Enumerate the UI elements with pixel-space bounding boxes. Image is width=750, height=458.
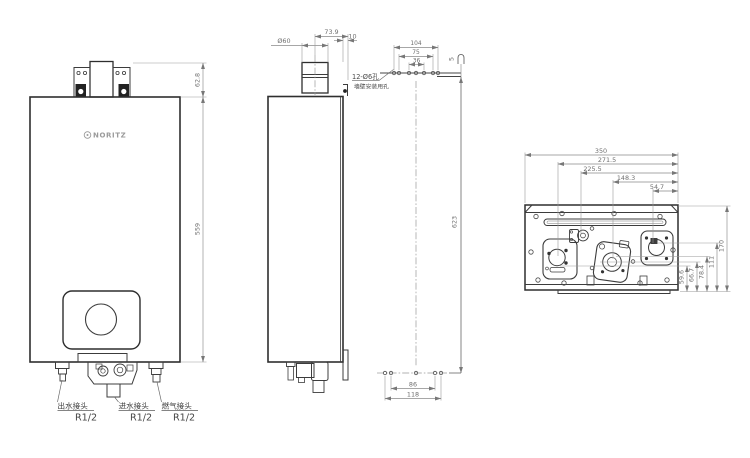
dim-bracket-height: 62.8 (194, 73, 202, 87)
top-hole-row (380, 71, 461, 76)
bottom-connectors (56, 362, 164, 397)
dim-h2: 225.5 (583, 165, 601, 173)
vent-slot (544, 219, 666, 226)
dim-h4: 54.7 (650, 183, 664, 191)
dim-v1: 59.6 (678, 270, 686, 284)
brand-logo: NORITZ (84, 132, 126, 140)
top-hole-dimensions: 104 75 36 (394, 41, 438, 70)
dim-v2: 66.7 (688, 268, 696, 282)
holes-note: 12-Ø6孔 (352, 73, 379, 81)
gas-port (641, 231, 673, 265)
side-bottom-piping (287, 362, 329, 393)
dim-v5: 170 (718, 240, 726, 252)
bottom-cover (78, 354, 127, 363)
dim-width: 350 (595, 147, 607, 155)
inlet-label: 进水接头 (119, 401, 150, 411)
dim-v4: 111 (708, 256, 716, 268)
dim-flue-diameter: Ø60 (277, 37, 290, 45)
wall-mounting-view: 104 75 36 12-Ø6孔 墙壁安装用孔 5 623 (352, 41, 464, 401)
connector-labels: 出水接头 R1/2 进水接头 R1/2 燃气接头 R1/2 (58, 380, 199, 424)
dim-back-clearance: 10 (348, 33, 356, 41)
dim-h1: 271.5 (598, 156, 616, 164)
brand-text: NORITZ (93, 132, 126, 140)
dim-bottom-holes-outer: 118 (407, 391, 419, 399)
side-body (268, 97, 343, 363)
gas-thread: R1/2 (173, 413, 195, 424)
bottom-body (525, 205, 678, 290)
dim-h3: 148.3 (617, 174, 635, 182)
dim-top-holes-mid: 75 (412, 50, 420, 56)
dim-bracket-gap: 5 (448, 57, 456, 61)
top-bracket (74, 62, 130, 98)
viewing-window (63, 291, 140, 349)
vertical-spacing-dimension: 5 623 (448, 55, 465, 374)
holes-note-sub: 墙壁安装用孔 (354, 83, 389, 91)
front-view: NORITZ 出水接头 (30, 62, 207, 424)
dim-top-holes-outer: 104 (410, 41, 421, 47)
valve-assembly (570, 230, 589, 243)
front-view-dimensions: 62.8 559 (133, 63, 207, 362)
bottom-hole-dimensions: 86 118 (385, 376, 441, 401)
outlet-label: 出水接头 (58, 401, 89, 411)
technical-drawing-page: NORITZ 出水接头 (0, 0, 750, 458)
dim-bottom-holes-inner: 86 (409, 381, 417, 389)
inlet-port (593, 237, 632, 283)
dim-body-height: 559 (194, 223, 202, 235)
side-view-dimensions: Ø60 73.9 10 (271, 28, 357, 80)
side-view: Ø60 73.9 10 (268, 28, 357, 393)
outlet-thread: R1/2 (75, 413, 97, 424)
flue-pipe (302, 55, 328, 95)
dim-hole-rows-spacing: 623 (451, 216, 459, 228)
dim-v3: 78.4 (698, 265, 706, 279)
bottom-view: 350 271.5 225.5 148.3 54.7 59.6 66.7 78.… (525, 147, 731, 294)
outlet-port (543, 239, 577, 279)
gas-label: 燃气接头 (162, 401, 193, 411)
dim-top-holes-inner: 36 (413, 59, 421, 65)
inlet-thread: R1/2 (130, 413, 152, 424)
bottom-hole-row (377, 371, 461, 374)
dim-flue-center-to-back: 73.9 (324, 28, 338, 36)
